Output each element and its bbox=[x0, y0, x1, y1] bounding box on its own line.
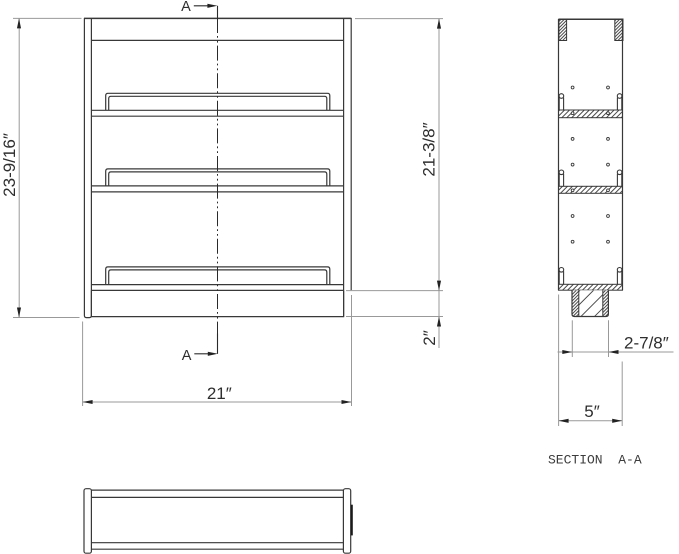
svg-text:23-9/16″: 23-9/16″ bbox=[0, 133, 19, 197]
svg-text:A: A bbox=[181, 0, 191, 15]
svg-text:21-3/8″: 21-3/8″ bbox=[420, 122, 439, 176]
svg-text:2-7/8″: 2-7/8″ bbox=[624, 334, 669, 353]
svg-text:A: A bbox=[182, 348, 192, 364]
svg-text:2″: 2″ bbox=[420, 330, 439, 345]
svg-text:21″: 21″ bbox=[207, 384, 232, 403]
svg-text:SECTION A-A: SECTION A-A bbox=[548, 453, 642, 468]
svg-text:5″: 5″ bbox=[584, 402, 599, 421]
